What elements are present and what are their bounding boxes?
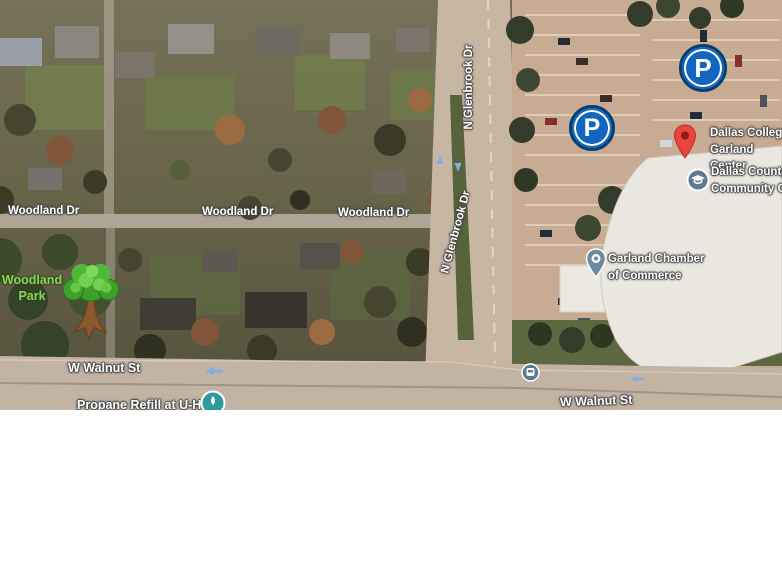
- street-label-woodland-dr-3: Woodland Dr: [338, 206, 409, 220]
- flyer: Woodland Dr Woodland Dr Woodland Dr N Gl…: [0, 0, 782, 570]
- bus-stop-icon[interactable]: [521, 363, 540, 382]
- satellite-terrain: [0, 0, 782, 410]
- dallas-county-line1: Dallas County: [711, 164, 782, 181]
- parking-letter: P: [694, 53, 711, 84]
- poi-label-propane[interactable]: Propane Refill at U-Haul: [77, 398, 219, 410]
- parking-letter: P: [584, 114, 601, 143]
- poi-label-woodland-park[interactable]: Woodland Park: [0, 272, 64, 304]
- red-map-pin-icon[interactable]: [673, 124, 697, 160]
- satellite-map[interactable]: Woodland Dr Woodland Dr Woodland Dr N Gl…: [0, 0, 782, 410]
- parking-icon-map-2[interactable]: P: [679, 44, 727, 92]
- chamber-line1: Garland Chamber: [608, 251, 708, 268]
- tree-clipart-overlay: [58, 262, 124, 342]
- chamber-line2: of Commerce: [608, 268, 708, 285]
- college-icon[interactable]: [686, 168, 710, 192]
- dallas-college-line1: Dallas College: [710, 125, 782, 142]
- street-label-walnut-2: W Walnut St: [560, 393, 633, 410]
- woodland-park-line1: Woodland: [0, 272, 64, 288]
- parking-icon-map-1[interactable]: P: [569, 105, 615, 151]
- street-label-woodland-dr-2: Woodland Dr: [202, 205, 273, 219]
- street-label-glenbrook-1: N Glenbrook Dr: [462, 32, 476, 142]
- woodland-park-line2: Park: [0, 288, 64, 304]
- street-label-walnut-1: W Walnut St: [68, 361, 140, 375]
- chamber-pin-icon[interactable]: [585, 248, 607, 278]
- poi-label-chamber[interactable]: Garland Chamber of Commerce: [608, 251, 708, 284]
- street-label-woodland-dr-1: Woodland Dr: [8, 204, 79, 218]
- legend: Tree Planting- Woodland Park 815 W. Waln…: [0, 410, 782, 570]
- poi-label-dallas-county[interactable]: Dallas County Community Cl: [711, 164, 782, 197]
- dallas-county-line2: Community Cl: [711, 181, 782, 198]
- uhaul-propane-icon[interactable]: [200, 390, 226, 410]
